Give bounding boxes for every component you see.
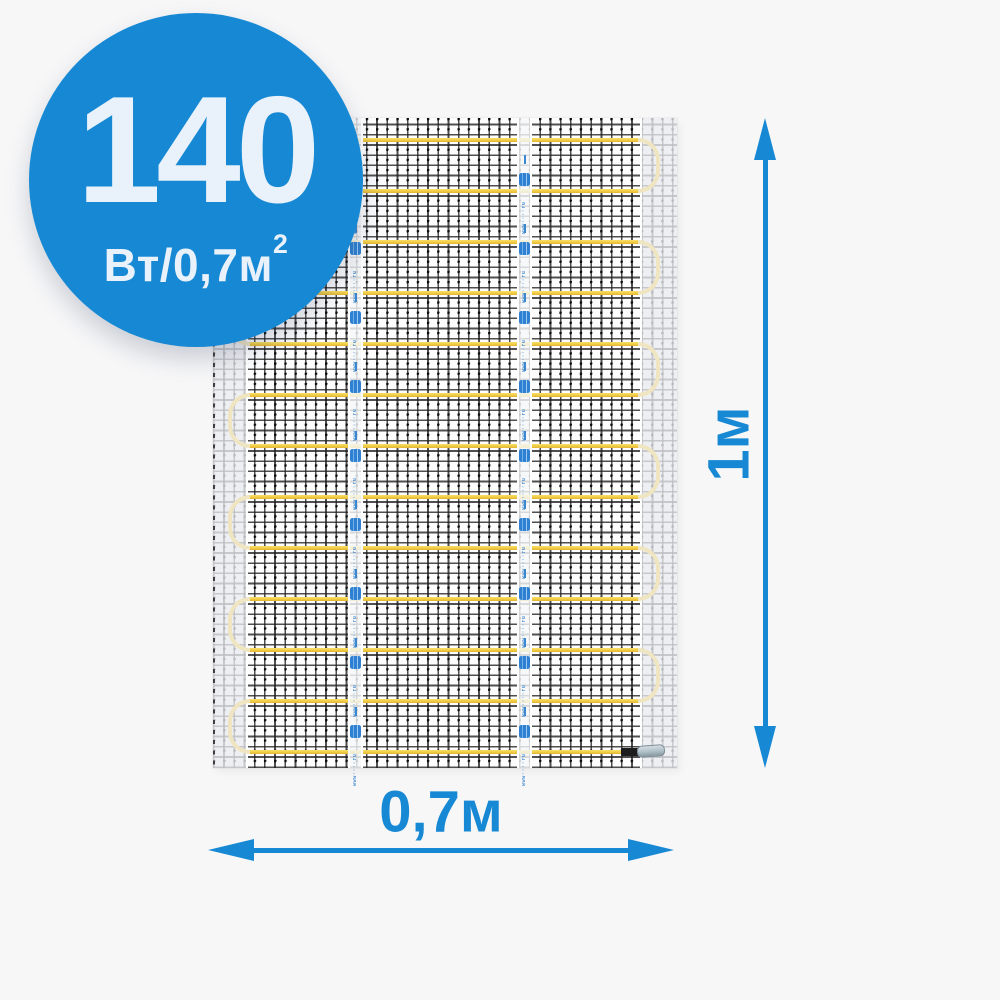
tape-dash-icon: [355, 569, 357, 578]
power-value: 140: [77, 74, 316, 226]
brand-stamp-icon: [350, 449, 361, 462]
tape-dash-icon: [524, 500, 526, 509]
brand-stamp-icon: [519, 656, 530, 669]
arrowhead-right-icon: [628, 839, 674, 861]
brand-stamp-icon: [519, 725, 530, 738]
height-arrow-line: [763, 152, 768, 732]
brand-stamp-icon: [519, 242, 530, 255]
height-dimension-label: 1м: [696, 406, 763, 481]
brand-stamp-icon: [519, 380, 530, 393]
mat-tape: www····ruwww····ruwww····ruwww····ruwww·…: [517, 118, 532, 768]
brand-stamp-icon: [519, 449, 530, 462]
brand-stamp-icon: [350, 242, 361, 255]
brand-stamp-icon: [350, 725, 361, 738]
power-badge: 140 Вт/0,7м2: [29, 13, 363, 347]
tape-dash-icon: [355, 362, 357, 371]
tape-dash-icon: [355, 500, 357, 509]
brand-stamp-icon: [519, 518, 530, 531]
tape-dash-icon: [524, 638, 526, 647]
tape-dash-icon: [524, 224, 526, 233]
brand-stamp-icon: [350, 311, 361, 324]
width-arrow-line: [250, 848, 634, 853]
tape-microtext: www····ru: [352, 742, 359, 786]
brand-stamp-icon: [350, 518, 361, 531]
brand-stamp-icon: [350, 587, 361, 600]
power-unit-superscript: 2: [273, 229, 288, 259]
width-dimension-label: 0,7м: [379, 779, 503, 846]
tape-microtext: www····ru: [521, 742, 528, 786]
arrowhead-left-icon: [208, 839, 254, 861]
crimp-sleeve-icon: [637, 744, 666, 758]
tape-dash-icon: [355, 707, 357, 716]
tape-dash-icon: [524, 431, 526, 440]
tape-dash-icon: [524, 707, 526, 716]
tape-dash-icon: [524, 293, 526, 302]
arrowhead-down-icon: [754, 726, 776, 768]
brand-stamp-icon: [519, 173, 530, 186]
power-unit: Вт/0,7м2: [104, 242, 289, 288]
brand-stamp-icon: [519, 587, 530, 600]
tape-dash-icon: [524, 155, 526, 164]
tape-dash-icon: [524, 569, 526, 578]
product-image: www····ruwww····ruwww····ruwww····ruwww·…: [0, 0, 1000, 1000]
brand-stamp-icon: [350, 380, 361, 393]
power-unit-text: Вт/0,7м: [104, 239, 273, 291]
tape-dash-icon: [355, 293, 357, 302]
tape-dash-icon: [524, 362, 526, 371]
brand-stamp-icon: [350, 656, 361, 669]
tape-dash-icon: [355, 638, 357, 647]
tape-dash-icon: [355, 431, 357, 440]
brand-stamp-icon: [519, 311, 530, 324]
